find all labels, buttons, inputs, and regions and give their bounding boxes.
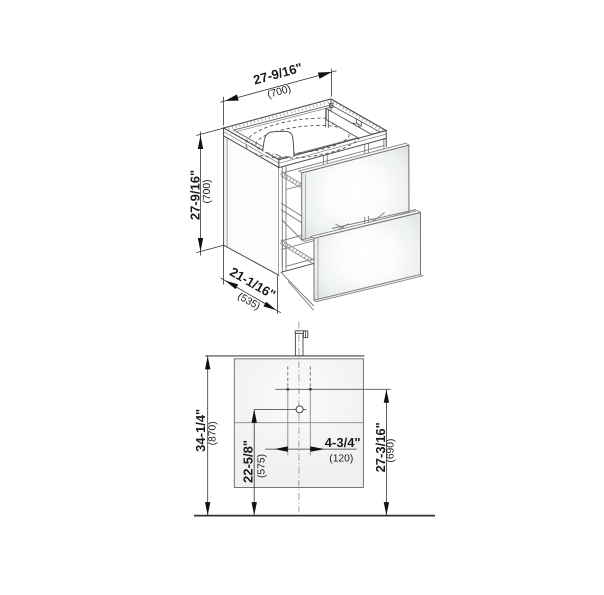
- svg-text:(690): (690): [386, 439, 397, 463]
- svg-text:22-5/8": 22-5/8": [241, 440, 256, 483]
- svg-text:34-1/4": 34-1/4": [193, 409, 208, 452]
- svg-text:27-9/16": 27-9/16": [252, 60, 304, 88]
- svg-text:(700): (700): [266, 84, 292, 101]
- svg-text:4-3/4": 4-3/4": [325, 435, 361, 450]
- svg-text:(120): (120): [329, 453, 353, 464]
- svg-text:27-9/16": 27-9/16": [188, 170, 203, 220]
- svg-text:(575): (575): [256, 454, 267, 478]
- svg-text:(870): (870): [207, 421, 218, 445]
- svg-text:(700): (700): [202, 179, 213, 203]
